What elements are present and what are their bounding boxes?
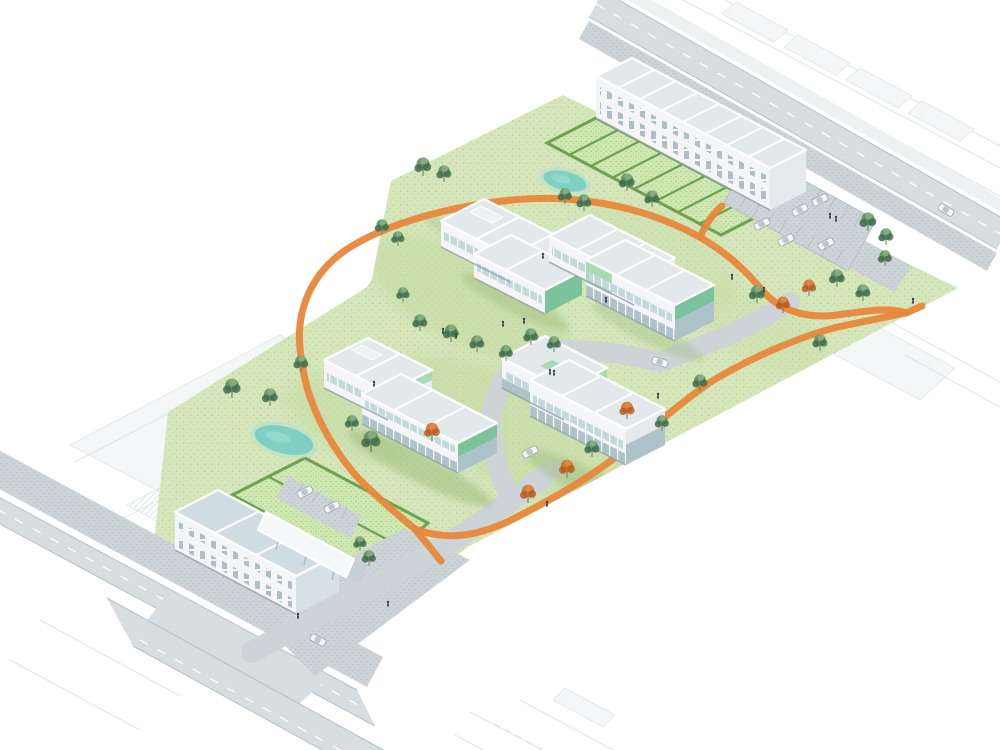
pedestrian — [502, 321, 504, 327]
context-house — [908, 101, 974, 141]
context-road-dashes — [495, 724, 1000, 750]
pedestrian — [442, 328, 444, 334]
pedestrian — [835, 216, 837, 222]
site-plan-page — [0, 0, 1000, 750]
pedestrian — [912, 298, 914, 304]
pedestrian — [657, 393, 659, 399]
pedestrian — [373, 381, 375, 387]
pedestrian — [387, 601, 389, 607]
pedestrian — [546, 501, 548, 507]
site-plan-image — [0, 0, 1000, 750]
pedestrian — [549, 369, 551, 375]
pedestrian — [731, 274, 733, 280]
pedestrian — [297, 613, 299, 619]
context-house — [846, 68, 912, 108]
tree — [878, 228, 893, 245]
pedestrian — [542, 253, 544, 259]
context-house-south — [553, 688, 615, 727]
context-road-continuation — [455, 700, 1000, 750]
context-house — [784, 35, 850, 75]
pedestrian — [605, 297, 607, 303]
context-house — [722, 2, 788, 42]
pedestrian — [553, 370, 555, 376]
pedestrian — [763, 287, 765, 293]
pedestrian — [829, 213, 831, 219]
pedestrian — [523, 318, 525, 324]
pedestrian — [455, 333, 457, 339]
